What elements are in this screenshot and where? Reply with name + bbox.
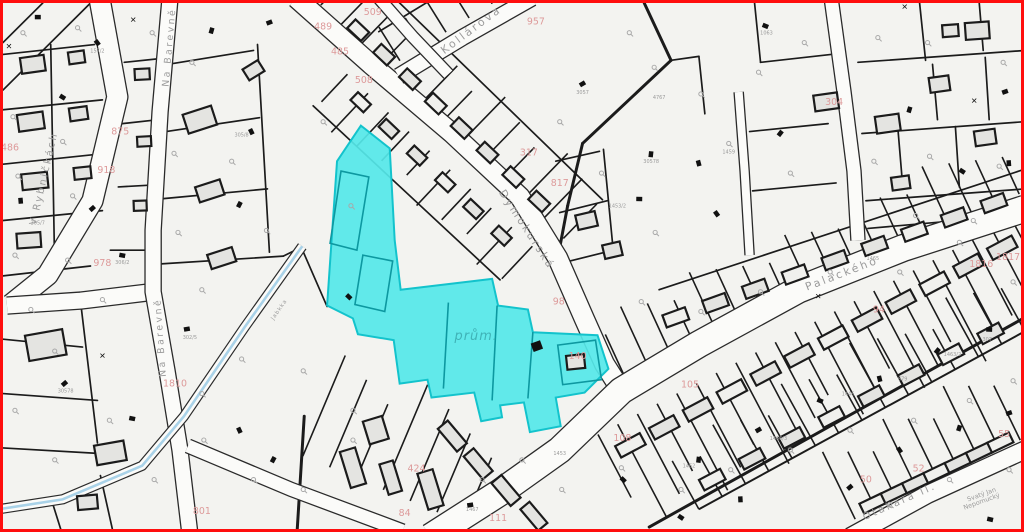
parcel-micro-label: 306/2	[115, 260, 129, 266]
parcel-number: 317	[520, 147, 538, 158]
parcel-micro-label: 1466/3	[770, 436, 787, 442]
parcel-number: 957	[527, 17, 545, 28]
cadastral-map-view[interactable]: prům.✕✕✕✕✕✕95750948948550848687591897881…	[0, 0, 1024, 532]
parcel-number: 304	[825, 97, 843, 108]
parcel-number: 509	[364, 7, 382, 18]
parcel-number: 978	[93, 258, 111, 269]
parcel-micro-label: 4767	[653, 95, 666, 101]
building	[942, 24, 959, 37]
parcel-micro-label: 157/2	[90, 48, 104, 54]
parcel-number: 50	[860, 475, 872, 486]
parcel-micro-label: 1453	[553, 451, 566, 457]
parcel-micro-label: 1063	[760, 31, 773, 37]
building-symbol	[636, 197, 642, 202]
cadastral-map-canvas[interactable]: prům.✕✕✕✕✕✕95750948948550848687591897881…	[3, 3, 1021, 529]
parcel-number: 1816	[969, 259, 993, 270]
parcel-number: 84	[399, 508, 411, 519]
cross-marker-icon: ✕	[130, 15, 137, 24]
parcel-micro-label: 1459	[722, 149, 735, 155]
parcel-micro-label: 1453/2	[609, 204, 626, 210]
building-symbol	[18, 198, 23, 204]
parcel-number: 918	[97, 165, 115, 176]
parcel-micro-label: 302/5	[183, 335, 197, 341]
parcel-number: 817	[551, 178, 569, 189]
highlight-area-label: prům.	[454, 329, 498, 344]
parcel-number: 52	[913, 464, 925, 475]
building	[25, 329, 67, 361]
building-symbol	[738, 496, 743, 502]
building	[891, 175, 911, 190]
building	[137, 136, 151, 147]
building	[68, 50, 85, 64]
parcel-micro-label: 3057	[576, 90, 589, 96]
building	[965, 21, 990, 39]
building	[929, 75, 951, 92]
parcel-number: 875	[111, 127, 129, 138]
parcel-number: 485	[331, 46, 349, 57]
building	[94, 441, 127, 466]
cross-marker-icon: ✕	[971, 96, 978, 105]
building	[16, 232, 41, 248]
building	[134, 68, 149, 80]
building	[69, 106, 89, 121]
building	[74, 166, 92, 180]
building	[974, 129, 997, 147]
cross-marker-icon: ✕	[901, 3, 908, 11]
building-symbol	[648, 151, 653, 157]
parcel-number: 140	[569, 351, 587, 362]
parcel-micro-label: 30578	[643, 159, 659, 165]
parcel-number: 489	[314, 22, 332, 33]
parcel-micro-label: 1467	[466, 507, 479, 513]
building	[17, 112, 45, 132]
parcel-number: 105	[681, 380, 699, 391]
building-symbol	[1006, 160, 1011, 166]
parcel-number: 801	[193, 506, 211, 517]
building	[602, 241, 623, 258]
parcel-number: 508	[355, 75, 373, 86]
building-symbol	[986, 327, 992, 332]
parcel-number: 55	[998, 429, 1010, 440]
building	[875, 114, 901, 134]
cross-marker-icon: ✕	[815, 292, 822, 301]
parcel-micro-label: 30578	[58, 389, 74, 395]
cross-marker-icon: ✕	[6, 42, 13, 51]
parcel-number: 108	[613, 433, 631, 444]
building	[20, 55, 46, 74]
parcel-micro-label: 307	[982, 337, 991, 343]
parcel-number: 111	[489, 513, 507, 524]
building-symbol	[35, 15, 41, 19]
parcel-micro-label: 679	[898, 377, 907, 383]
parcel-micro-label: 1446	[842, 392, 855, 398]
building-symbol	[696, 457, 701, 463]
parcel-number: 98	[553, 297, 565, 308]
parcel-micro-label: 1462	[683, 464, 696, 470]
parcel-micro-label: 305/8	[234, 132, 248, 138]
parcel-number: 1817	[996, 252, 1020, 263]
building	[575, 211, 598, 230]
parcel-micro-label: 1463/2	[944, 352, 961, 358]
parcel-number: 424	[408, 464, 426, 475]
building	[77, 495, 98, 511]
cross-marker-icon: ✕	[99, 351, 106, 360]
building	[134, 201, 147, 211]
parcel-number: 94	[873, 304, 885, 315]
parcel-number: 486	[3, 142, 19, 153]
parcel-number: 1810	[163, 379, 187, 390]
